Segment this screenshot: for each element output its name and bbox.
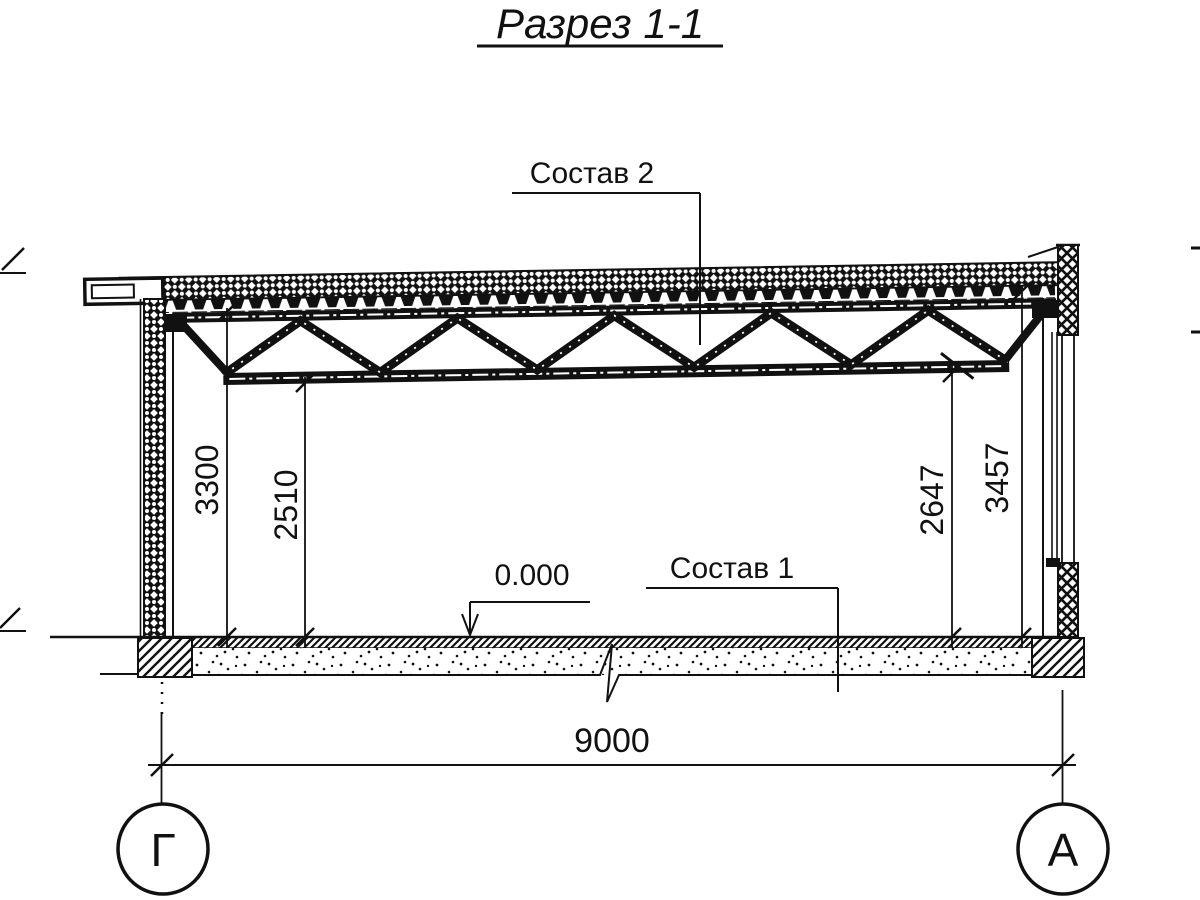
edge-mark-bottom-left (0, 608, 20, 628)
floor-level-mark: 0.000 (462, 559, 590, 635)
left-wall (141, 299, 188, 637)
drawing-svg: Разрез 1-1 (0, 0, 1200, 900)
axis-label-right: А (1048, 824, 1079, 876)
drawing-title-block: Разрез 1-1 (477, 0, 723, 47)
parapet-hatch (1058, 245, 1078, 335)
axis-circle-right: А (1018, 804, 1108, 894)
dim-text-left-outer: 3300 (189, 444, 225, 515)
floor-assembly-label: Состав 1 (670, 552, 794, 585)
truss-support-right (1032, 300, 1058, 318)
window-sill (1046, 558, 1060, 567)
axis-label-left: Г (151, 824, 176, 876)
floor-slab (50, 637, 1060, 702)
dim-text-right-outer: 3457 (979, 442, 1015, 513)
parapet-flashing (1028, 247, 1058, 257)
vertical-dimensions: 3300 2510 2647 3457 (189, 282, 1031, 648)
roof-assembly (85, 262, 1067, 393)
right-wall-lower-hatch (1058, 563, 1078, 637)
truss-support-left (165, 314, 187, 332)
dim-text-span: 9000 (574, 722, 650, 760)
roof-assembly-label: Состав 2 (530, 157, 654, 190)
window (1052, 332, 1074, 566)
axis-circle-left: Г (118, 804, 208, 894)
left-wall-hatch (144, 299, 165, 637)
foundation-right (1032, 638, 1084, 677)
span-dimension: 9000 (148, 690, 1076, 804)
drawing-title: Разрез 1-1 (496, 0, 704, 47)
foundation-left (138, 638, 192, 677)
dim-text-left-inner: 2510 (268, 469, 304, 540)
dim-text-right-inner: 2647 (914, 464, 950, 535)
edge-mark-top-left (2, 248, 24, 270)
floor-level-label: 0.000 (494, 559, 569, 592)
slab-stipple (165, 648, 1060, 675)
section-drawing: Разрез 1-1 (0, 0, 1200, 900)
right-wall (1028, 245, 1080, 637)
